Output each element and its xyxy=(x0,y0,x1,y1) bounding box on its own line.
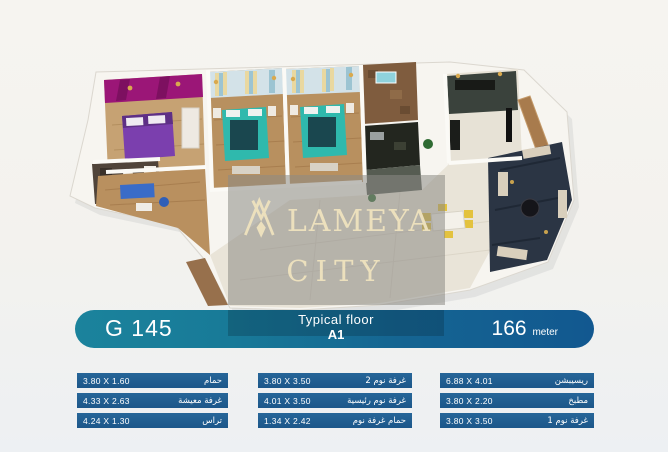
unit-code: G 145 xyxy=(105,315,173,342)
table-row: 4.24 X 1.30 تراس xyxy=(77,413,228,428)
room-dimensions: 3.80 X 3.50 xyxy=(264,376,311,386)
bedroom-1 xyxy=(208,68,286,190)
table-row: 4.01 X 3.50 غرفة نوم رئيسية xyxy=(258,393,412,408)
entry-hall xyxy=(445,69,522,163)
floor-code: A1 xyxy=(228,328,444,343)
room-name: حمام غرفة نوم xyxy=(353,416,406,426)
dims-column-2: 3.80 X 3.50 غرفة نوم 2 4.01 X 3.50 غرفة … xyxy=(258,373,412,433)
watermark-brand-text: LAMEYA xyxy=(287,207,432,237)
room-dimensions: 4.24 X 1.30 xyxy=(83,416,130,426)
table-row: 3.80 X 3.50 غرفة نوم 1 xyxy=(440,413,594,428)
table-row: 1.34 X 2.42 حمام غرفة نوم xyxy=(258,413,412,428)
room-name: غرفة معيشة xyxy=(178,396,222,406)
dims-column-1: 3.80 X 1.60 حمام 4.33 X 2.63 غرفة معيشة … xyxy=(77,373,228,433)
room-name: تراس xyxy=(202,416,222,426)
table-row: 6.88 X 4.01 ريسيبشن xyxy=(440,373,594,388)
floor-type-label: Typical floor xyxy=(228,313,444,328)
room-name: حمام xyxy=(204,376,222,386)
unit-header-bar: G 145 Typical floor A1 166 meter xyxy=(75,310,594,348)
room-dimensions: 3.80 X 1.60 xyxy=(83,376,130,386)
room-dimensions: 3.80 X 2.20 xyxy=(446,396,493,406)
room-name: مطبخ xyxy=(568,396,588,406)
bedroom-2 xyxy=(285,66,363,186)
room-dimensions: 6.88 X 4.01 xyxy=(446,376,493,386)
listing-image: LAMEYA CITY G 145 Typical floor A1 166 m… xyxy=(0,0,668,452)
room-name: غرفة نوم 1 xyxy=(547,416,588,426)
watermark: LAMEYA CITY xyxy=(228,175,445,305)
floor-block: Typical floor A1 xyxy=(228,313,444,343)
room-dimensions: 1.34 X 2.42 xyxy=(264,416,311,426)
table-row: 3.80 X 1.60 حمام xyxy=(77,373,228,388)
room-dimensions: 4.01 X 3.50 xyxy=(264,396,311,406)
area-value: 166 meter xyxy=(492,317,558,341)
table-row: 4.33 X 2.63 غرفة معيشة xyxy=(77,393,228,408)
table-row: 3.80 X 3.50 غرفة نوم 2 xyxy=(258,373,412,388)
room-dimensions: 3.80 X 3.50 xyxy=(446,416,493,426)
room-dimensions: 4.33 X 2.63 xyxy=(83,396,130,406)
plant xyxy=(423,139,433,149)
room-name: ريسيبشن xyxy=(555,376,588,386)
room-name: غرفة نوم 2 xyxy=(365,376,406,386)
dims-column-3: 6.88 X 4.01 ريسيبشن 3.80 X 2.20 مطبخ 3.8… xyxy=(440,373,594,433)
area-unit-label: meter xyxy=(532,327,558,338)
watermark-city-text: CITY xyxy=(286,257,386,286)
alameya-logo-monogram xyxy=(241,196,285,248)
room-name: غرفة نوم رئيسية xyxy=(347,396,406,406)
table-row: 3.80 X 2.20 مطبخ xyxy=(440,393,594,408)
